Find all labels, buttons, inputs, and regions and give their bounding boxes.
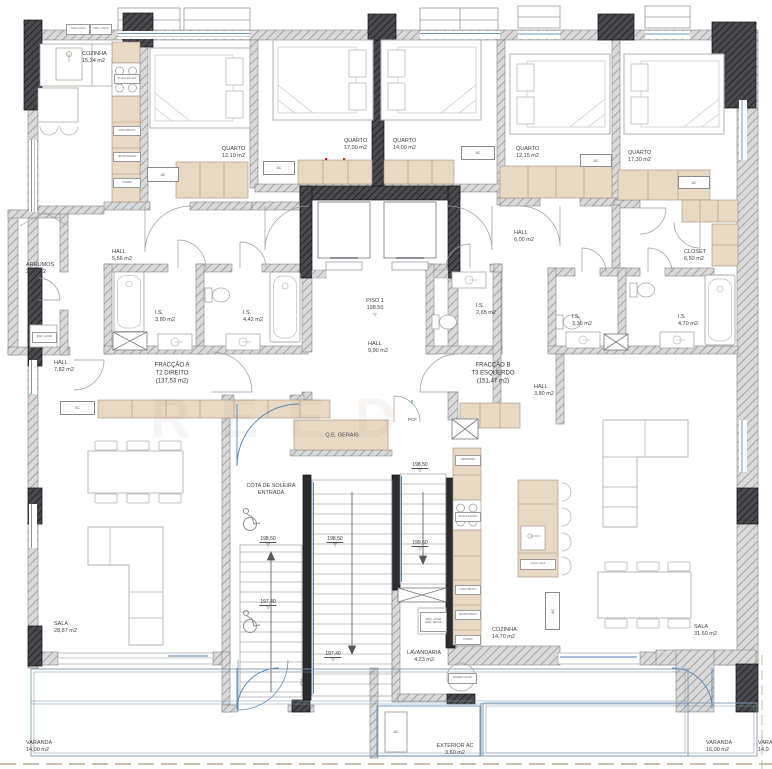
room-label-quarto-a1: QUARTO12,10 m2 [222,146,245,160]
pantry-label-b: DESPENSA [455,455,481,466]
dishwasher-label-a: MÁQ. LOIÇA [90,24,112,35]
sink-label-a: LAVA LOIÇA [66,24,90,35]
room-label-hall-a1: HALL5,56 m2 [112,249,132,263]
hob-label-b: PLACA FOGÃO [455,512,481,522]
sink-label-b: LAVA LOIÇA [520,559,556,570]
oven-label-b: FORNO [455,635,481,645]
level-marker-3: 198,50▽ [411,462,428,474]
floor-plan: REED [0,0,772,769]
ac-unit-quarto-a1: AC [147,167,179,182]
washer-dryer-label: MÁQ. LAVARMÁQ. SECAR [420,612,447,632]
room-label-is-b3: I.S.4,70 m2 [678,314,698,328]
level-marker-1: 198,50▽ [259,536,276,548]
room-label-cozinha-b: COZINHA14,70 m2 [492,627,517,641]
micro-label-b: MICROONDAS [455,610,481,620]
fraction-b-label: FRACÇÃO BT3 ESQUERDO(151,47 m2) [471,362,514,385]
pcf-label-2: PCF [300,679,305,687]
level-marker-4: 199,60▽ [411,540,428,552]
room-label-sala-a: SALA28,87 m2 [54,621,77,635]
room-label-hall-b2: HALL3,80 m2 [534,384,554,398]
micro-label-a: MICROONDAS [113,152,141,162]
room-label-varanda-a: VARANDA14,00 m2 [26,740,52,754]
room-label-is-a1: I.S.3,60 m2 [155,310,175,324]
fraction-a-label: FRACÇÃO AT2 DIREITO(137,53 m2) [155,362,190,385]
oven-label-a: FORNO [113,178,141,188]
room-label-hall-c: HALL9,90 m2 [368,341,388,355]
room-label-varanda-b: VARANDA16,00 m2 [706,740,732,754]
room-label-closet: CLOSET6,50 m2 [684,249,706,263]
level-marker-6: 197,40▽ [324,651,341,663]
ac-unit-cozinha-b: AC [545,592,560,630]
room-label-hall-a2: HALL7,82 m2 [54,360,74,374]
ac-unit-exterior: AC [389,726,403,738]
room-label-varanda-c: VARANDA14,0 [758,740,772,754]
room-label-quarto-b1: QUARTO14,00 m2 [393,138,416,152]
room-label-lavandaria: LAVANDARIA4,23 m2 [407,650,441,664]
fridge-label-b: FRIGORÍFICO [455,585,481,595]
room-label-hall-b1: HALL6,00 m2 [514,230,534,244]
balconies [0,655,772,769]
room-label-is-b2: I.S.3,30 m2 [572,314,592,328]
elevators [312,202,448,278]
room-label-quarto-b3: QUARTO17,30 m2 [628,150,651,164]
level-marker-5: 197,40▽ [259,599,276,611]
hob-label-a: PLACA FOGÃO [114,74,140,84]
room-label-cozinha-a: COZINHA15,34 m2 [82,51,107,65]
room-label-arrumos: ARRUMOS2,00 m2 [26,262,54,276]
room-label-sala-b: SALA31,60 m2 [694,624,717,638]
wheelchair-icon [244,509,261,633]
arrumos-shelf-label: MÁQ. LAVAR [32,332,57,343]
fridge-label-a: FRIGORÍFICO [113,126,141,136]
room-label-is-b1: I.S.2,65 m2 [476,303,496,317]
room-label-quarto-b2: QUARTO12,15 m2 [516,146,539,160]
ac-unit-quarto-b3: AC [678,176,710,189]
cota-soleira-label: COTA DE SOLEIRAENTRADA [246,483,295,497]
ac-unit-quarto-b2: AC [580,154,612,167]
level-marker-2: 198,50▽ [326,536,343,548]
heatpump-label: BOMBA CALOR [448,673,477,684]
ac-unit-quarto-b1: AC [461,146,495,160]
ac-unit-sala-a: AC [60,401,95,415]
room-label-quarto-a2: QUARTO17,00 m2 [344,138,367,152]
room-label-is-a2: I.S.4,42 m2 [243,310,263,324]
qe-gerais-label: Q.E. GERAIS [325,432,358,439]
piso-level-marker: PISO 1198.50▽ [366,298,384,318]
ac-unit-quarto-a2: AC [263,161,295,175]
room-label-exterior-ac: EXTERIOR AC3,60 m2 [437,743,474,757]
pcf-label-1: PCF [408,417,417,423]
